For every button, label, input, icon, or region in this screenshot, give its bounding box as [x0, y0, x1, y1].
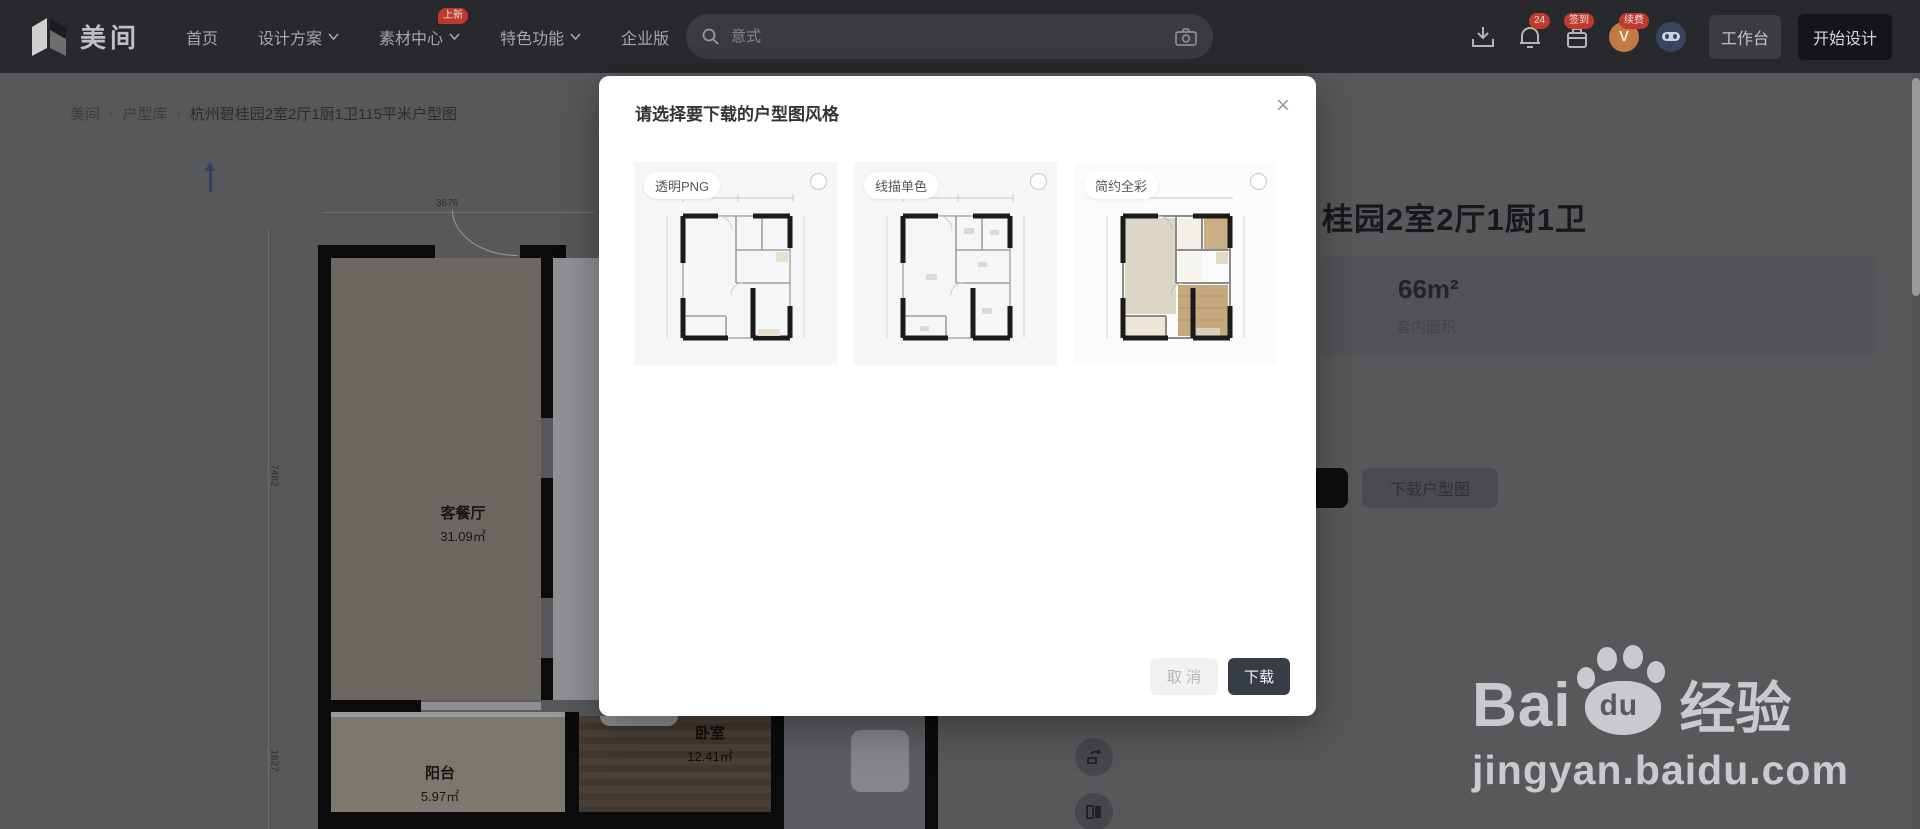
room-living-dining — [331, 258, 541, 700]
wall — [331, 700, 421, 712]
logo-text: 美间 — [80, 18, 140, 55]
watermark-brand-prefix: Bai — [1472, 675, 1571, 737]
vip-avatar[interactable]: V 续费 — [1609, 22, 1639, 52]
wall — [318, 812, 565, 829]
chevron-down-icon — [449, 33, 460, 40]
breadcrumb-current: 杭州碧桂园2室2厅1厨1卫115平米户型图 — [190, 103, 457, 124]
floorplan-thumbnail-line — [658, 188, 813, 353]
compare-icon — [1085, 803, 1103, 821]
notification-count-badge: 24 — [1529, 13, 1550, 29]
style-option-full-color[interactable]: 简约全彩 — [1074, 162, 1277, 365]
watermark-brand-paw-text: du — [1599, 689, 1638, 723]
north-arrow-tip — [205, 162, 215, 171]
top-nav: 美间 首页 设计方案 素材中心 上新 特色功能 企业版 — [0, 0, 1920, 73]
download-icon — [1470, 24, 1496, 50]
search-icon — [702, 28, 719, 45]
style-option-label: 线描单色 — [864, 172, 938, 199]
floorplan-thumbnail-mono — [878, 188, 1033, 353]
bathtub — [851, 730, 909, 792]
nav-item-home[interactable]: 首页 — [186, 25, 218, 49]
search-input[interactable] — [729, 27, 1175, 46]
checkin-badge: 签到 — [1564, 13, 1594, 29]
dimension-left-top-value: 7482 — [269, 464, 280, 486]
search-box — [686, 14, 1213, 59]
chevron-down-icon — [570, 33, 581, 40]
window-segment — [421, 700, 541, 712]
style-option-label: 透明PNG — [644, 172, 720, 199]
style-option-transparent-png[interactable]: 透明PNG — [634, 162, 837, 365]
share-button[interactable] — [1075, 738, 1113, 776]
download-floorplan-button[interactable]: 下载户型图 — [1362, 468, 1498, 508]
renew-badge: 续费 — [1619, 13, 1649, 29]
room-label-living: 客餐厅 31.09㎡ — [413, 502, 513, 545]
room-corridor — [553, 258, 599, 700]
scrollbar-thumb[interactable] — [1912, 78, 1920, 296]
breadcrumb: 美间 › 户型库 › 杭州碧桂园2室2厅1厨1卫115平米户型图 — [70, 103, 457, 124]
nav-item-material-center[interactable]: 素材中心 上新 — [379, 25, 460, 49]
wall — [520, 245, 566, 258]
nav-item-design-plans[interactable]: 设计方案 — [258, 25, 339, 49]
door-arc — [452, 210, 518, 256]
download-style-modal: 请选择要下载的户型图风格 × 透明PNG — [599, 76, 1316, 716]
dimension-left-bottom-value: 1627 — [269, 749, 280, 771]
radio-transparent-png[interactable] — [810, 173, 827, 190]
balcony-window-line — [331, 712, 565, 717]
camera-icon[interactable] — [1175, 28, 1197, 46]
room-label-balcony: 阳台 5.97㎡ — [390, 762, 490, 805]
user-avatar[interactable] — [1656, 22, 1686, 52]
close-icon[interactable]: × — [1276, 94, 1290, 118]
chevron-down-icon — [328, 33, 339, 40]
breadcrumb-section[interactable]: 户型库 — [122, 103, 167, 124]
breadcrumb-separator: › — [109, 106, 113, 121]
logo[interactable]: 美间 — [30, 17, 140, 57]
paw-icon: du — [1577, 645, 1669, 737]
wall — [541, 478, 553, 598]
nav-item-featured[interactable]: 特色功能 — [500, 25, 581, 49]
start-design-button[interactable]: 开始设计 — [1798, 14, 1892, 60]
workspace-button[interactable]: 工作台 — [1709, 15, 1781, 59]
breadcrumb-home[interactable]: 美间 — [70, 103, 100, 124]
robot-face-icon — [1662, 32, 1680, 41]
floorplan-thumbnail-color — [1098, 188, 1253, 353]
wall — [579, 812, 779, 829]
radio-full-color[interactable] — [1250, 173, 1267, 190]
wall — [318, 245, 435, 258]
nav-item-enterprise[interactable]: 企业版 — [621, 25, 669, 49]
breadcrumb-separator: › — [176, 106, 180, 121]
confirm-download-button[interactable]: 下载 — [1228, 658, 1290, 695]
north-arrow-icon — [209, 168, 212, 192]
dimension-top-value: 3676 — [436, 198, 458, 209]
modal-title: 请选择要下载的户型图风格 — [635, 100, 839, 125]
watermark-url: jingyan.baidu.com — [1472, 747, 1849, 794]
wall — [541, 258, 553, 418]
area-value: 66m² — [1398, 274, 1459, 305]
wall — [541, 658, 553, 700]
watermark: Bai du 经验 jingyan.baidu.com — [1472, 645, 1849, 794]
new-badge: 上新 — [438, 8, 468, 24]
logo-icon — [30, 17, 68, 57]
stats-card: 66m² 套内面积 — [1320, 256, 1876, 356]
checkin-button[interactable]: 签到 — [1562, 22, 1592, 52]
cancel-button[interactable]: 取 消 — [1150, 658, 1218, 695]
download-center-button[interactable] — [1468, 22, 1498, 52]
wall — [318, 245, 331, 829]
style-option-line-monochrome[interactable]: 线描单色 — [854, 162, 1057, 365]
style-option-label: 简约全彩 — [1084, 172, 1158, 199]
page: 3676 7482 1627 客餐厅 31. — [0, 0, 1920, 829]
plan-title: 桂园2室2厅1厨1卫 — [1322, 194, 1587, 239]
area-label: 套内面积 — [1396, 316, 1456, 337]
vip-v-icon: V — [1619, 28, 1629, 45]
notifications-button[interactable]: 24 — [1515, 22, 1545, 52]
radio-line-monochrome[interactable] — [1030, 173, 1047, 190]
room-label-bedroom: 卧室 12.41㎡ — [660, 722, 760, 765]
dimension-line-left — [268, 230, 269, 829]
watermark-brand-suffix: 经验 — [1679, 681, 1791, 737]
wall — [565, 712, 579, 829]
compare-button[interactable] — [1075, 793, 1113, 829]
wall — [925, 716, 938, 829]
share-icon — [1085, 748, 1103, 766]
